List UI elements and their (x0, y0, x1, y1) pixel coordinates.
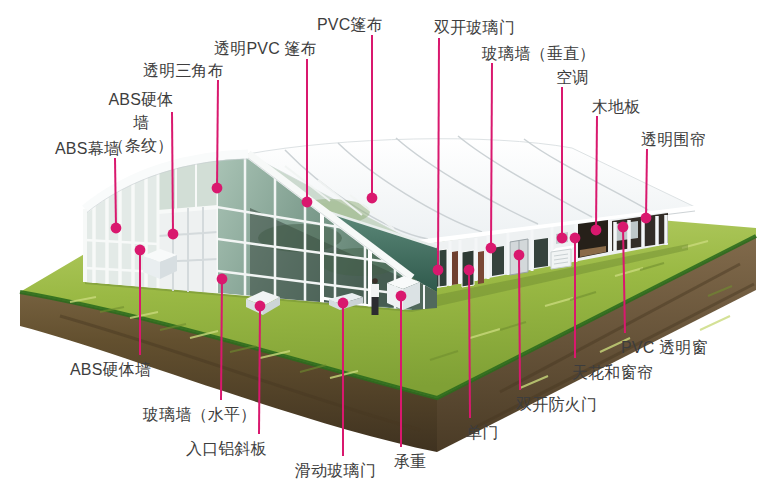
diagram-stage: ABS幕墙ABS硬体墙 （条纹）透明三角布透明PVC 篷布PVC篷布双开玻璃门玻… (0, 0, 757, 500)
callout-dot-double-fire-door (514, 250, 525, 261)
leader-line-glass-wall-vertical (491, 63, 492, 248)
callout-dot-sliding-glass-door (338, 298, 349, 309)
callout-lines-layer (0, 0, 757, 500)
leader-line-single-door (469, 270, 470, 418)
leader-line-abs-hard-wall-striped (172, 112, 173, 234)
leader-line-entrance-ramp (259, 306, 260, 434)
callout-dot-single-door (464, 265, 475, 276)
leader-line-wood-floor (596, 116, 597, 230)
callout-dot-abs-curtain-wall (111, 223, 122, 234)
leader-line-abs-curtain-wall (115, 158, 116, 228)
leader-line-double-fire-door (519, 255, 520, 390)
callout-dot-clear-side-curtain (641, 213, 652, 224)
callout-dot-clear-pvc-canopy (302, 197, 313, 208)
leader-line-clear-side-curtain (646, 149, 647, 218)
callout-dot-glass-wall-vertical (486, 243, 497, 254)
callout-dot-entrance-ramp (255, 301, 266, 312)
leader-line-glass-wall-horizontal (221, 279, 222, 400)
callout-dot-clear-gable-cloth (212, 183, 223, 194)
callout-dot-ceiling-and-curtain (570, 233, 581, 244)
callout-dot-pvc-clear-window (618, 222, 629, 233)
callout-dot-load-bearing (396, 291, 407, 302)
callout-dot-abs-hard-wall (135, 245, 146, 256)
leader-line-pvc-clear-window (623, 227, 625, 333)
callout-dot-abs-hard-wall-striped (168, 229, 179, 240)
leader-line-clear-gable-cloth (217, 80, 218, 188)
callout-dot-pvc-canopy (367, 193, 378, 204)
callout-dot-double-glass-door (433, 265, 444, 276)
callout-dot-glass-wall-horizontal (217, 274, 228, 285)
callout-dot-air-conditioner (557, 233, 568, 244)
leader-line-double-glass-door (438, 38, 439, 270)
callout-dot-wood-floor (591, 225, 602, 236)
